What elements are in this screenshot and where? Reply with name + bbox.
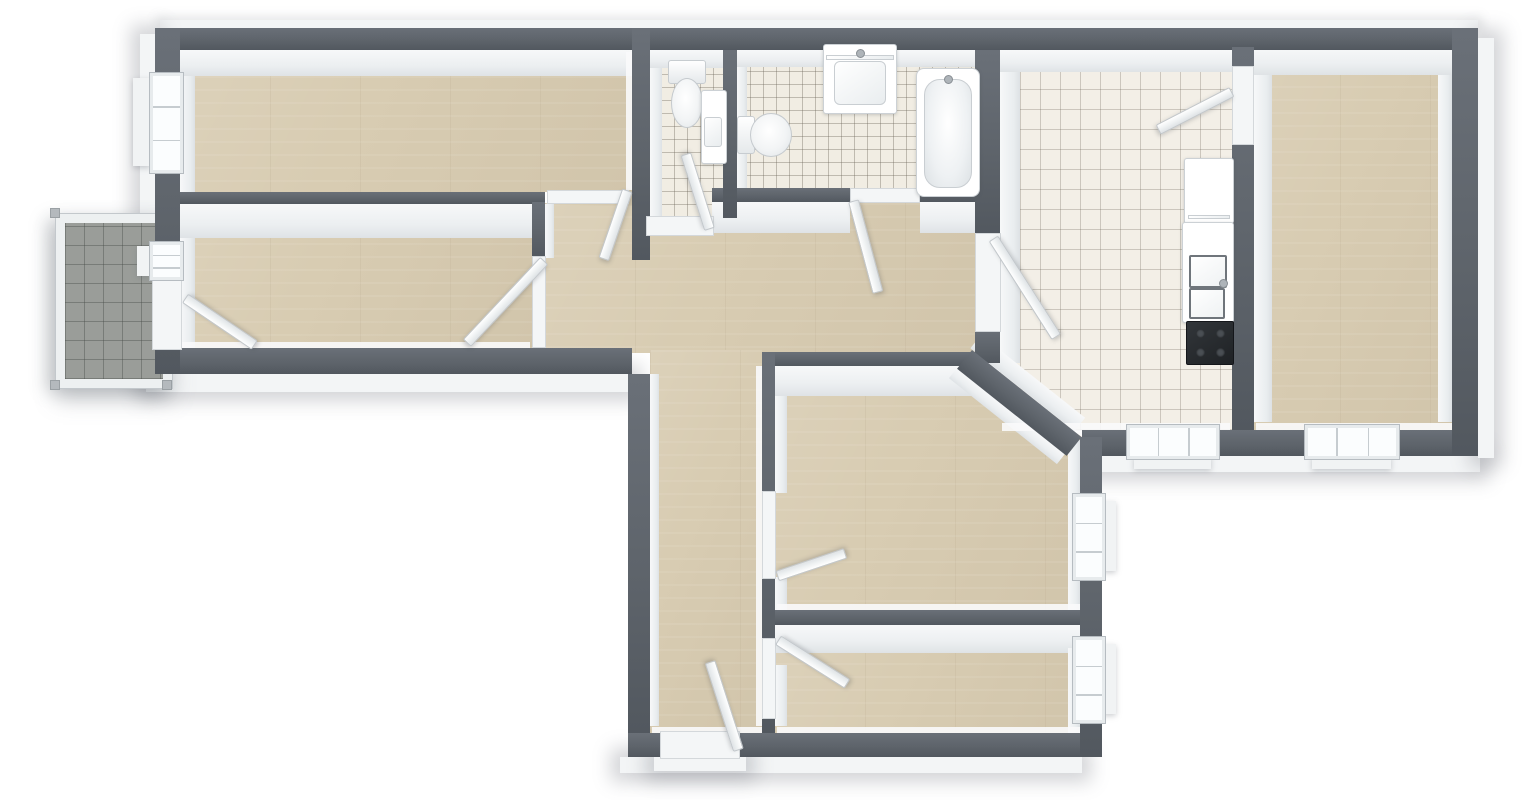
face-kitchen-west xyxy=(1000,72,1020,363)
face-top-bedroom-2 xyxy=(1254,47,1452,75)
window-room-2-pane xyxy=(153,255,180,257)
window-bottom-room xyxy=(1072,636,1106,724)
window-kitchen-pane xyxy=(1158,428,1160,456)
kitchen-sink-counter-basin-2 xyxy=(1189,288,1225,319)
wall-living-north xyxy=(762,352,980,366)
floor-hallway xyxy=(650,350,762,735)
washbasin-vanity-basin xyxy=(834,61,886,105)
sill-bedroom-1 xyxy=(133,78,150,166)
wall-living-bottomroom xyxy=(775,610,1082,625)
kitchen-cooktop xyxy=(1186,321,1234,365)
threshold-bathroom xyxy=(850,188,920,203)
corner-sink-wc xyxy=(701,90,727,164)
window-kitchen xyxy=(1126,424,1220,460)
toilet-wc xyxy=(668,60,704,128)
outer-face-top xyxy=(160,20,1478,28)
window-living-room-pane xyxy=(1076,523,1102,525)
face-hallway-west xyxy=(650,374,659,726)
wall-right xyxy=(1452,28,1478,456)
balcony-post xyxy=(50,380,60,390)
window-living-room xyxy=(1072,493,1106,581)
bathtub-faucet xyxy=(944,75,953,84)
window-room-2-pane xyxy=(153,267,180,269)
window-bedroom-2-pane xyxy=(1336,428,1338,456)
kitchen-sink-counter-faucet xyxy=(1219,279,1228,288)
floor-bedroom-2 xyxy=(1250,47,1452,430)
kitchen-cooktop-burner-2 xyxy=(1216,329,1225,338)
window-bedroom-1 xyxy=(149,72,184,174)
floor-plan xyxy=(0,0,1531,800)
kitchen-cabinet-line xyxy=(1188,215,1230,219)
bathtub-basin xyxy=(924,79,972,188)
wall-room2-south xyxy=(155,348,632,374)
window-kitchen-pane xyxy=(1188,428,1190,456)
face-room2-doorjamb xyxy=(545,204,554,258)
threshold-balcony-door xyxy=(152,276,182,350)
window-bedroom-2 xyxy=(1304,424,1400,460)
kitchen-cooktop-burner-1 xyxy=(1196,329,1205,338)
window-bottom-room-pane xyxy=(1076,694,1102,696)
face-living-west-a xyxy=(775,396,787,493)
face-wc-west xyxy=(650,68,662,216)
toilet-wc-bowl xyxy=(671,78,703,128)
toilet-bathroom xyxy=(737,112,791,156)
window-living-room-pane xyxy=(1076,551,1102,553)
kitchen-cooktop-burner-3 xyxy=(1196,348,1205,357)
wall-bedroom1-room2 xyxy=(155,192,545,204)
kitchen-cooktop-burner-4 xyxy=(1216,348,1225,357)
outer-face-right xyxy=(1478,38,1494,458)
face-room2-north xyxy=(180,204,532,238)
threshold-living-room xyxy=(762,491,776,579)
face-top-bedroom-1 xyxy=(180,50,632,76)
balcony-post xyxy=(162,380,172,390)
washbasin-vanity xyxy=(823,44,897,114)
toilet-bathroom-bowl xyxy=(750,113,792,157)
face-bedroom2-west xyxy=(1254,75,1272,422)
washbasin-vanity-faucet xyxy=(856,49,865,58)
wall-room2-doorjamb xyxy=(532,202,545,258)
window-room-2 xyxy=(149,241,184,281)
face-bottomroom-north xyxy=(775,625,1082,653)
face-bedroom2-east xyxy=(1438,75,1452,422)
kitchen-sink-counter xyxy=(1182,222,1234,323)
face-living-north xyxy=(775,366,977,396)
window-bedroom-1-pane xyxy=(153,140,180,142)
face-corridor-bath-2 xyxy=(920,202,980,233)
face-bottomroom-west xyxy=(775,665,787,726)
wall-top xyxy=(155,28,1478,50)
threshold-bottom-room xyxy=(762,638,776,719)
bathtub xyxy=(916,68,980,197)
balcony-post xyxy=(50,208,60,218)
corner-sink-wc-basin xyxy=(704,117,722,147)
outer-face-room2-south xyxy=(146,374,632,392)
threshold-kitchen-bedroom2 xyxy=(1232,66,1254,145)
wall-hallway-west xyxy=(628,374,650,733)
kitchen-cabinet xyxy=(1184,158,1234,224)
window-bedroom-2-pane xyxy=(1368,428,1370,456)
window-bedroom-1-pane xyxy=(153,106,180,108)
entry-step xyxy=(654,757,746,771)
face-top-kitchen xyxy=(1000,50,1232,72)
window-bottom-room-pane xyxy=(1076,666,1102,668)
